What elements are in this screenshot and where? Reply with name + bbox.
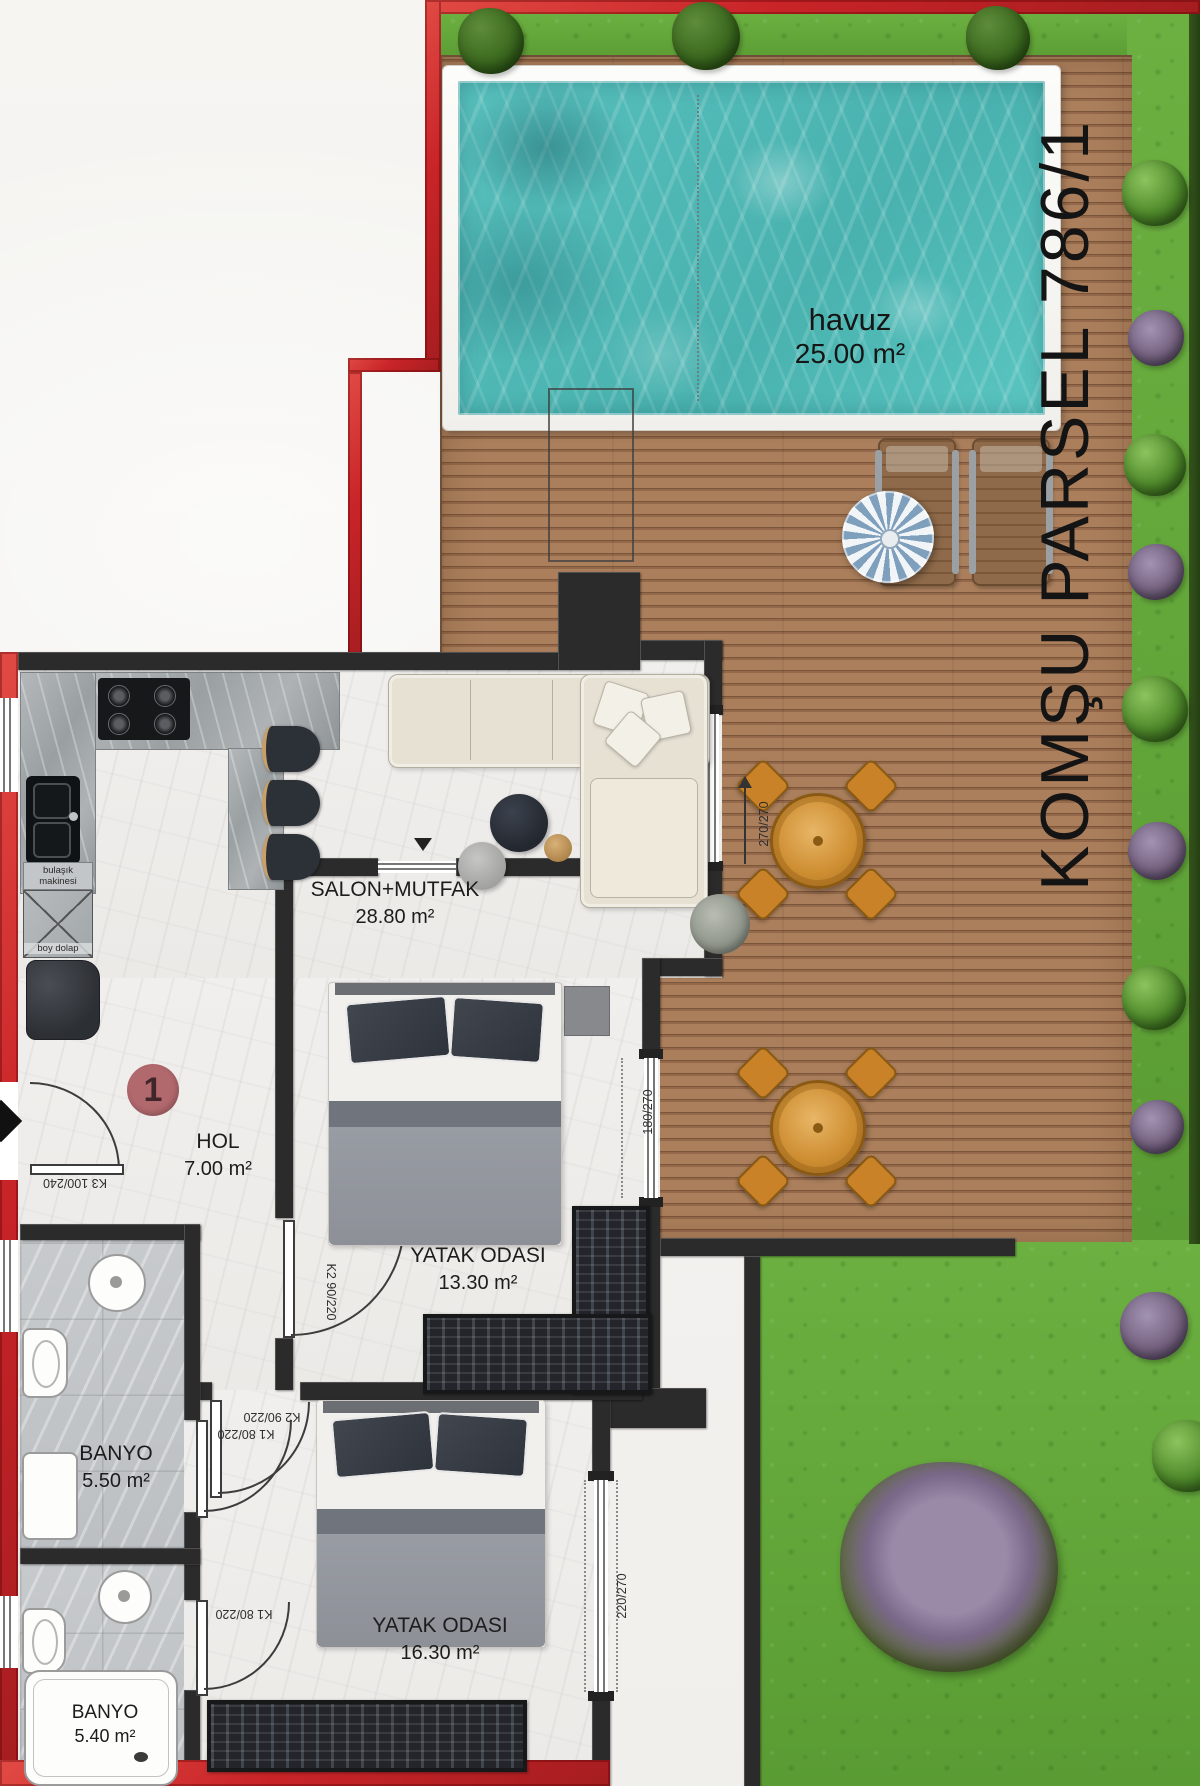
unit-number-badge: 1 xyxy=(127,1064,179,1116)
hol-label: HOL 7.00 m² xyxy=(158,1128,278,1182)
section-triangle-marker xyxy=(414,838,432,851)
sofa-seat-line xyxy=(552,680,553,760)
exterior-wall-garden-left xyxy=(425,0,441,372)
dining-set xyxy=(725,748,905,928)
toilet xyxy=(22,1608,66,1674)
parasol-umbrella xyxy=(842,491,934,583)
bathroom2-window xyxy=(0,1596,18,1668)
wall xyxy=(184,1564,200,1600)
kitchen-sink xyxy=(26,776,80,864)
bathroom2-door-label: K1 80/220 xyxy=(216,1607,273,1621)
bar-stool xyxy=(262,834,320,880)
window-direction-arrow xyxy=(738,776,752,788)
wall xyxy=(184,1224,200,1420)
dishwasher-label: bulaşık makinesi xyxy=(23,862,93,890)
wall xyxy=(660,1238,1015,1256)
window-arrow-line xyxy=(744,788,746,864)
sofa-chaise-cushion xyxy=(590,778,698,898)
tall-cabinet-label: boy dolap xyxy=(24,943,92,954)
pool-measure-dotted-line xyxy=(697,95,699,401)
salon-label: SALON+MUTFAK 28.80 m² xyxy=(295,876,495,930)
tree xyxy=(458,8,524,74)
entrance-door-leaf xyxy=(30,1164,124,1175)
wall xyxy=(642,958,660,1058)
exterior-wall-top xyxy=(425,0,1200,14)
dining-table xyxy=(770,1080,866,1176)
wardrobe xyxy=(423,1314,652,1394)
window-projection-dotted xyxy=(584,1480,586,1692)
sofa-seat-line xyxy=(470,680,471,760)
bar-stool xyxy=(262,780,320,826)
kitchen-window xyxy=(0,698,18,792)
exterior-wall-step-v xyxy=(348,372,362,668)
salon-bedroom1-partition-window xyxy=(378,861,456,873)
bedroom2-window xyxy=(594,1480,608,1692)
wall xyxy=(200,1382,212,1400)
dining-table xyxy=(770,793,866,889)
wall xyxy=(592,1388,610,1480)
tree xyxy=(1122,966,1186,1030)
bathroom1-door-label: K1 80/220 xyxy=(218,1427,275,1441)
window-jamb xyxy=(588,1691,614,1701)
bedroom1-door-label: K2 90/220 xyxy=(324,1264,338,1321)
bathroom2-label: BANYO 5.40 m² xyxy=(40,1700,170,1749)
window-projection-dotted xyxy=(621,1058,623,1198)
section-marker-box xyxy=(548,388,634,562)
dishwasher-label-text: bulaşık makinesi xyxy=(24,865,92,887)
bathroom1-label: BANYO 5.50 m² xyxy=(36,1440,196,1494)
flowering-bush xyxy=(840,1462,1058,1672)
pool-area: 25.00 m² xyxy=(740,338,960,370)
tree xyxy=(672,2,740,70)
wardrobe xyxy=(207,1700,527,1772)
bed xyxy=(316,1400,546,1648)
bed xyxy=(328,982,562,1246)
tree xyxy=(1122,676,1188,742)
wall xyxy=(275,1338,293,1390)
tree xyxy=(1122,160,1188,226)
pool-name: havuz xyxy=(740,302,960,338)
bedroom1-label: YATAK ODASI 13.30 m² xyxy=(378,1242,578,1296)
nightstand xyxy=(564,986,610,1036)
washbasin xyxy=(88,1254,146,1312)
tree xyxy=(1124,434,1186,496)
toilet xyxy=(22,1328,68,1398)
coffee-table-wood xyxy=(544,834,572,862)
bedroom2-window-label: 220/270 xyxy=(615,1573,629,1618)
wall xyxy=(744,1256,760,1786)
bar-stool xyxy=(262,726,320,772)
floor-plan-canvas: havuz 25.00 m² KOMŞU PARSEL 786/1 xyxy=(0,0,1200,1786)
wall xyxy=(20,1548,200,1564)
coffee-table-dark xyxy=(490,794,548,852)
exterior-wall-step-h xyxy=(348,358,440,372)
tall-cabinet: boy dolap xyxy=(23,890,93,958)
bedroom2-label: YATAK ODASI 16.30 m² xyxy=(340,1612,540,1666)
wall xyxy=(20,1224,200,1240)
pool-label: havuz 25.00 m² xyxy=(740,302,960,370)
salon-window-label: 270/270 xyxy=(757,801,771,846)
potted-plant xyxy=(690,894,750,954)
tree xyxy=(966,6,1030,70)
cooktop-stove xyxy=(98,678,190,740)
dining-set xyxy=(725,1035,905,1215)
wall xyxy=(558,572,640,670)
bathroom1-window xyxy=(0,1240,18,1332)
bedroom1-window-label: 180/270 xyxy=(641,1089,655,1134)
unit-number: 1 xyxy=(144,1071,163,1110)
entrance-door-label: K3 100/240 xyxy=(43,1176,107,1190)
washbasin xyxy=(98,1570,152,1624)
appliance xyxy=(26,960,100,1040)
dining-chair xyxy=(735,1045,792,1102)
hedge-strip xyxy=(1189,0,1200,1244)
wall xyxy=(18,652,558,670)
neighbor-parcel-label: KOMŞU PARSEL 786/1 xyxy=(1026,119,1104,891)
